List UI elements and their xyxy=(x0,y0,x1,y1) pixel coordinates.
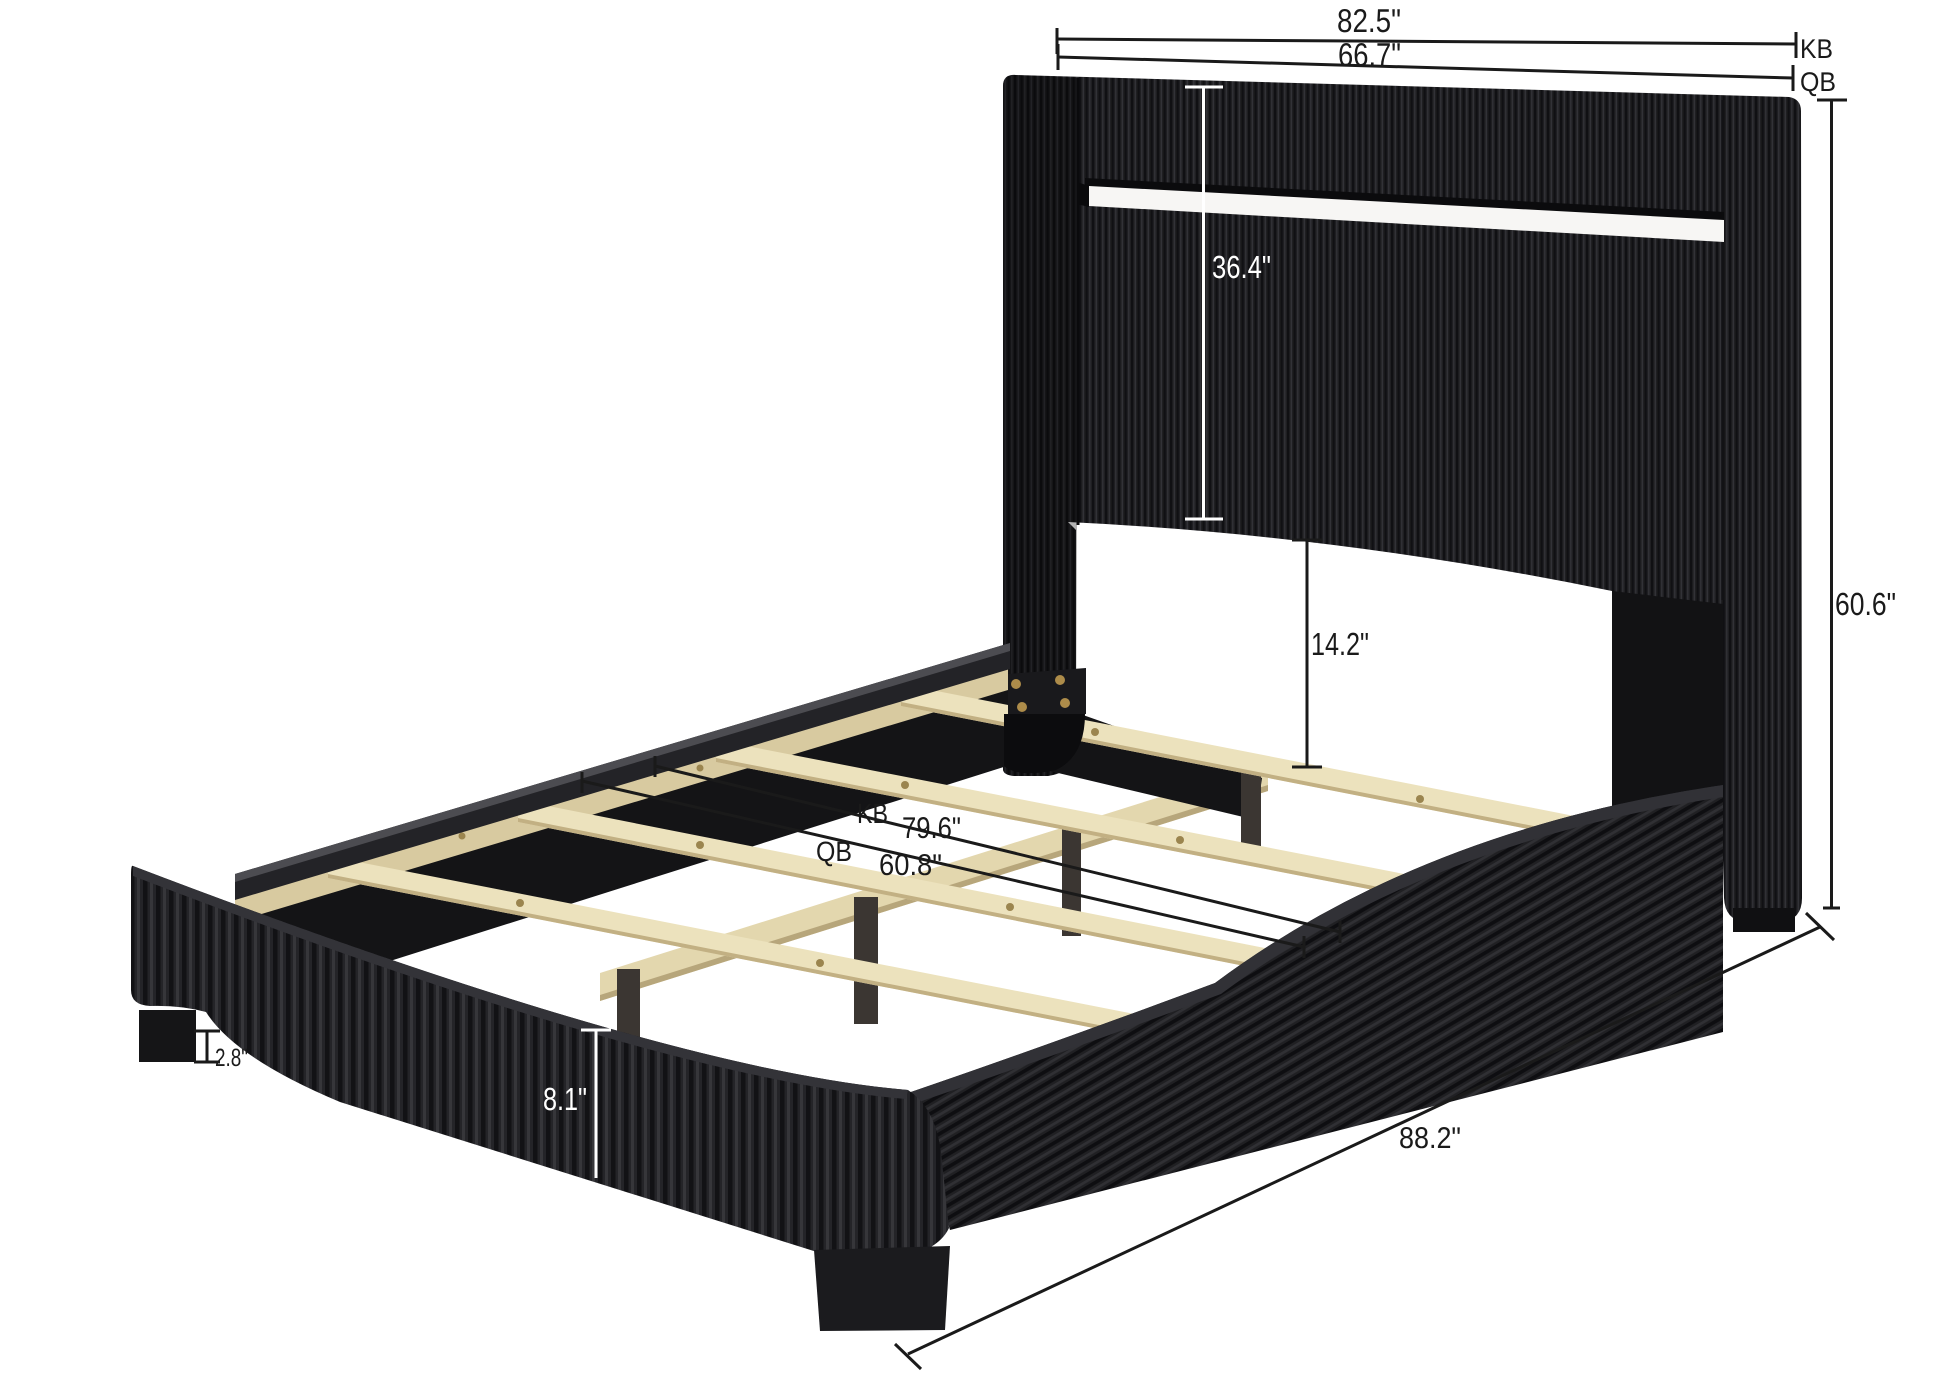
svg-text:60.8": 60.8" xyxy=(879,849,942,882)
svg-text:36.4": 36.4" xyxy=(1212,249,1271,285)
svg-text:2.8": 2.8" xyxy=(215,1044,248,1072)
svg-text:66.7": 66.7" xyxy=(1338,36,1401,73)
svg-text:QB: QB xyxy=(816,836,852,867)
svg-text:82.5": 82.5" xyxy=(1337,2,1401,39)
svg-text:8.1": 8.1" xyxy=(543,1081,587,1117)
svg-text:60.6": 60.6" xyxy=(1835,586,1896,622)
svg-text:88.2": 88.2" xyxy=(1399,1122,1461,1155)
svg-text:QB: QB xyxy=(1800,67,1836,97)
svg-text:KB: KB xyxy=(1800,34,1833,64)
svg-text:KB: KB xyxy=(857,798,888,829)
svg-text:79.6": 79.6" xyxy=(902,812,961,845)
svg-text:14.2": 14.2" xyxy=(1311,626,1369,662)
